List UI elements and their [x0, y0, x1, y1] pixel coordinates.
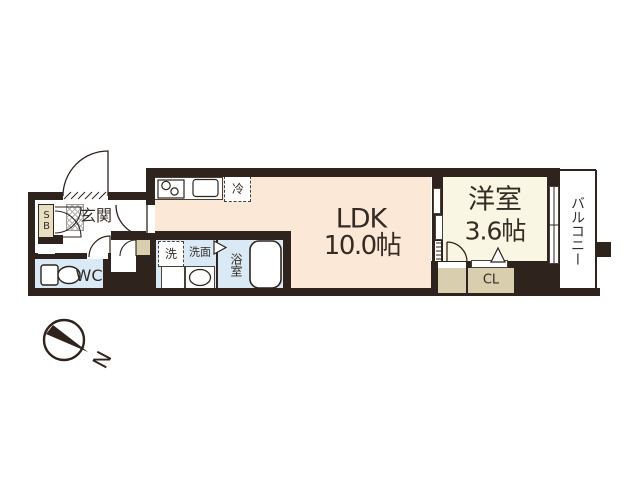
hall-door-arc — [116, 205, 147, 236]
sliding-door-hatch-lines — [436, 243, 441, 259]
entrance-sill-hatch — [64, 192, 106, 199]
stove-icon — [158, 180, 184, 198]
sliding-door-hatch — [436, 243, 441, 259]
wc-door-arc — [89, 236, 110, 257]
shoe-box-label: SB — [41, 210, 51, 232]
refrigerator-label: 冷 — [232, 183, 244, 195]
window-sash-line — [549, 187, 559, 263]
washer-label: 洗 — [165, 248, 177, 260]
wc-label: WC — [76, 268, 103, 284]
washbasin-icon — [190, 270, 211, 286]
compass-icon: N — [44, 320, 115, 372]
wc-door-swing — [89, 236, 110, 257]
bathtub-icon — [250, 241, 281, 288]
balcony-label: バルコニー — [570, 196, 584, 266]
stove-burner-1 — [162, 181, 170, 189]
washroom-label: 洗面 — [189, 247, 211, 258]
western-room-label: 洋室 — [468, 187, 522, 214]
western-room-size-label: 3.6帖 — [465, 219, 526, 244]
bath-door-mark — [214, 241, 226, 254]
shoe-box-door-swing — [55, 207, 81, 237]
bathroom-label: 浴室 — [230, 253, 242, 277]
stove-burner-2 — [171, 188, 178, 195]
window-sash — [549, 187, 559, 263]
entrance-door-swing — [63, 151, 108, 196]
hall-door-swing — [116, 205, 147, 236]
kitchen-sink-icon — [193, 180, 218, 197]
toilet-tank — [41, 265, 58, 285]
compass-north-label: N — [87, 347, 116, 372]
shoe-box-door-arcs — [55, 207, 81, 237]
entrance-door-arc — [63, 151, 108, 199]
ldk-label: LDK — [336, 206, 387, 233]
washroom-door-arc — [120, 240, 136, 256]
washroom-door-swing — [120, 240, 136, 256]
closet-label: CL — [483, 274, 499, 287]
closet-door-mark — [491, 248, 505, 262]
floor-plan: N LDK 10.0帖 洋室 3.6帖 バルコニー 玄関 WC SB CL 洗 … — [0, 0, 640, 480]
ldk-size-label: 10.0帖 — [324, 233, 400, 259]
stove-outline — [158, 180, 184, 198]
linework-layer: N — [0, 0, 640, 480]
entrance-label: 玄関 — [80, 208, 112, 224]
toilet-icon — [41, 265, 80, 285]
